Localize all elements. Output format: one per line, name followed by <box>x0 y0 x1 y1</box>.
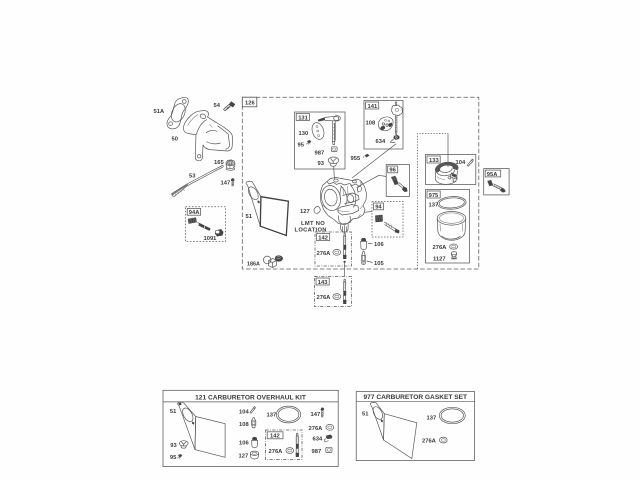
svg-text:LOCATION: LOCATION <box>295 228 327 234</box>
svg-text:54: 54 <box>214 103 221 109</box>
svg-text:634: 634 <box>313 437 323 443</box>
svg-text:104: 104 <box>239 410 249 416</box>
svg-text:121 CARBURETOR OVERHAUL KIT: 121 CARBURETOR OVERHAUL KIT <box>195 394 306 401</box>
svg-text:51: 51 <box>362 412 369 418</box>
svg-text:51: 51 <box>170 409 177 415</box>
svg-text:987: 987 <box>312 449 322 455</box>
svg-text:955: 955 <box>351 156 361 162</box>
svg-text:137: 137 <box>267 413 277 419</box>
svg-text:276A: 276A <box>309 426 324 432</box>
svg-text:137: 137 <box>427 416 437 422</box>
svg-text:96: 96 <box>389 168 396 174</box>
svg-text:93: 93 <box>170 443 177 449</box>
svg-text:276A: 276A <box>317 295 332 301</box>
svg-text:276A: 276A <box>269 449 284 455</box>
svg-text:276A: 276A <box>422 439 437 445</box>
svg-text:975: 975 <box>429 193 439 199</box>
svg-text:142: 142 <box>270 434 280 440</box>
svg-text:987: 987 <box>315 151 325 157</box>
svg-text:142: 142 <box>318 235 328 241</box>
svg-text:141: 141 <box>368 104 378 110</box>
svg-text:133: 133 <box>429 158 439 164</box>
svg-text:108: 108 <box>366 121 376 127</box>
svg-text:50: 50 <box>172 137 178 143</box>
svg-text:106: 106 <box>374 242 384 248</box>
svg-text:126: 126 <box>245 100 255 106</box>
svg-text:LMT NO: LMT NO <box>301 221 325 227</box>
svg-text:95A: 95A <box>487 172 498 178</box>
svg-text:106: 106 <box>239 441 249 447</box>
svg-text:1091: 1091 <box>204 236 218 242</box>
svg-text:276A: 276A <box>317 251 332 257</box>
svg-text:53: 53 <box>189 174 196 180</box>
svg-text:131: 131 <box>298 115 308 121</box>
svg-text:93: 93 <box>318 161 325 167</box>
svg-text:147: 147 <box>221 181 231 187</box>
svg-text:1127: 1127 <box>433 256 446 262</box>
svg-text:147: 147 <box>311 412 321 418</box>
svg-text:143: 143 <box>318 280 328 286</box>
svg-text:276A: 276A <box>433 245 448 251</box>
svg-text:977 CARBURETOR GASKET SET: 977 CARBURETOR GASKET SET <box>364 394 468 401</box>
svg-text:634: 634 <box>376 139 386 145</box>
svg-text:51A: 51A <box>154 109 165 115</box>
svg-text:104: 104 <box>456 160 466 166</box>
svg-text:130: 130 <box>299 131 309 137</box>
svg-text:108: 108 <box>239 422 249 428</box>
svg-text:105: 105 <box>374 261 384 267</box>
svg-text:94A: 94A <box>189 210 200 216</box>
svg-text:127: 127 <box>239 454 249 460</box>
svg-text:127: 127 <box>300 209 310 215</box>
svg-text:51: 51 <box>246 214 253 220</box>
svg-text:95: 95 <box>298 142 305 148</box>
svg-text:94: 94 <box>375 205 382 211</box>
svg-text:95: 95 <box>170 455 177 461</box>
svg-text:186A: 186A <box>247 262 260 268</box>
svg-text:137: 137 <box>429 203 439 209</box>
